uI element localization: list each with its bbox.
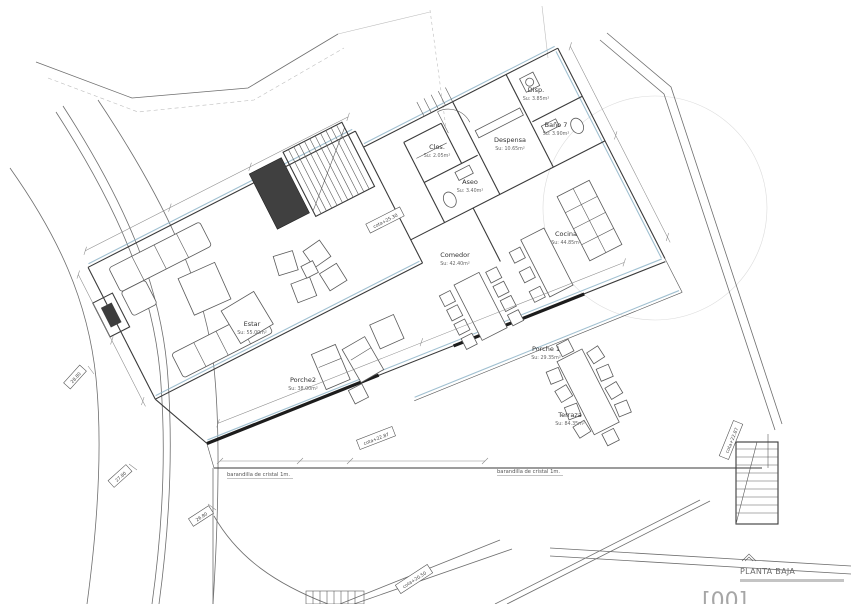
site-lines-bottom-right xyxy=(340,500,851,604)
room-label-cocina: Cocina xyxy=(555,230,577,238)
room-area-porche2: Su: 38.00m² xyxy=(288,386,318,392)
railing-label-2: barandilla de cristal 1m. xyxy=(497,469,560,475)
room-area-terraza: Su: 84.35m² xyxy=(555,421,585,427)
road-elevation-tags: 28.80 27.80 26.80 xyxy=(64,365,214,526)
sheet-number: [00] xyxy=(702,589,747,604)
floor-plan-sheet: Estar Su: 55.00m² Comedor Su: 42.40m² Co… xyxy=(0,0,851,604)
sheet-title: PLANTA BAJA xyxy=(740,567,795,576)
railing-labels: barandilla de cristal 1m. barandilla de … xyxy=(227,469,563,479)
room-label-terraza: Terraza xyxy=(557,411,581,419)
room-area-estar: Su: 55.00m² xyxy=(237,330,267,336)
room-area-comedor: Su: 42.40m² xyxy=(440,261,470,267)
dining-table xyxy=(438,264,524,349)
fireplace xyxy=(93,293,130,337)
room-label-disp: Disp. xyxy=(528,86,544,94)
room-label-clos: Clos. xyxy=(429,143,445,151)
house-rotated-group xyxy=(66,8,742,604)
room-area-cocina: Su: 44.85m² xyxy=(551,240,581,246)
clipped-subtitle-line xyxy=(740,579,844,582)
interior-stair xyxy=(247,122,374,234)
room-label-bano7: Baño 7 xyxy=(545,121,568,129)
bottom-edge-steps xyxy=(306,591,364,604)
floor-plan-drawing: Estar Su: 55.00m² Comedor Su: 42.40m² Co… xyxy=(0,0,851,604)
plot-boundary-lines xyxy=(36,6,548,128)
room-area-porche1: Su: 29.35m² xyxy=(531,355,561,361)
room-label-aseo: Aseo xyxy=(462,178,478,186)
right-boundary-wall xyxy=(600,33,782,430)
exterior-stair xyxy=(736,442,778,524)
room-area-bano7: Su: 3.90m² xyxy=(543,131,570,137)
terrace-platform xyxy=(207,434,768,468)
room-area-disp: Su: 3.85m² xyxy=(523,96,550,102)
room-label-porche2: Porche2 xyxy=(290,376,316,384)
room-label-despensa: Despensa xyxy=(494,136,526,144)
room-label-comedor: Comedor xyxy=(440,251,470,259)
railing-label-1: barandilla de cristal 1m. xyxy=(227,472,290,478)
room-label-porche1: Porche 1 xyxy=(532,345,560,353)
room-area-aseo: Su: 3.40m² xyxy=(457,188,484,194)
house-walls xyxy=(87,29,682,527)
room-area-clos: Su: 2.05m² xyxy=(424,153,451,159)
room-label-estar: Estar xyxy=(244,320,261,328)
room-area-despensa: Su: 10.65m² xyxy=(495,146,525,152)
